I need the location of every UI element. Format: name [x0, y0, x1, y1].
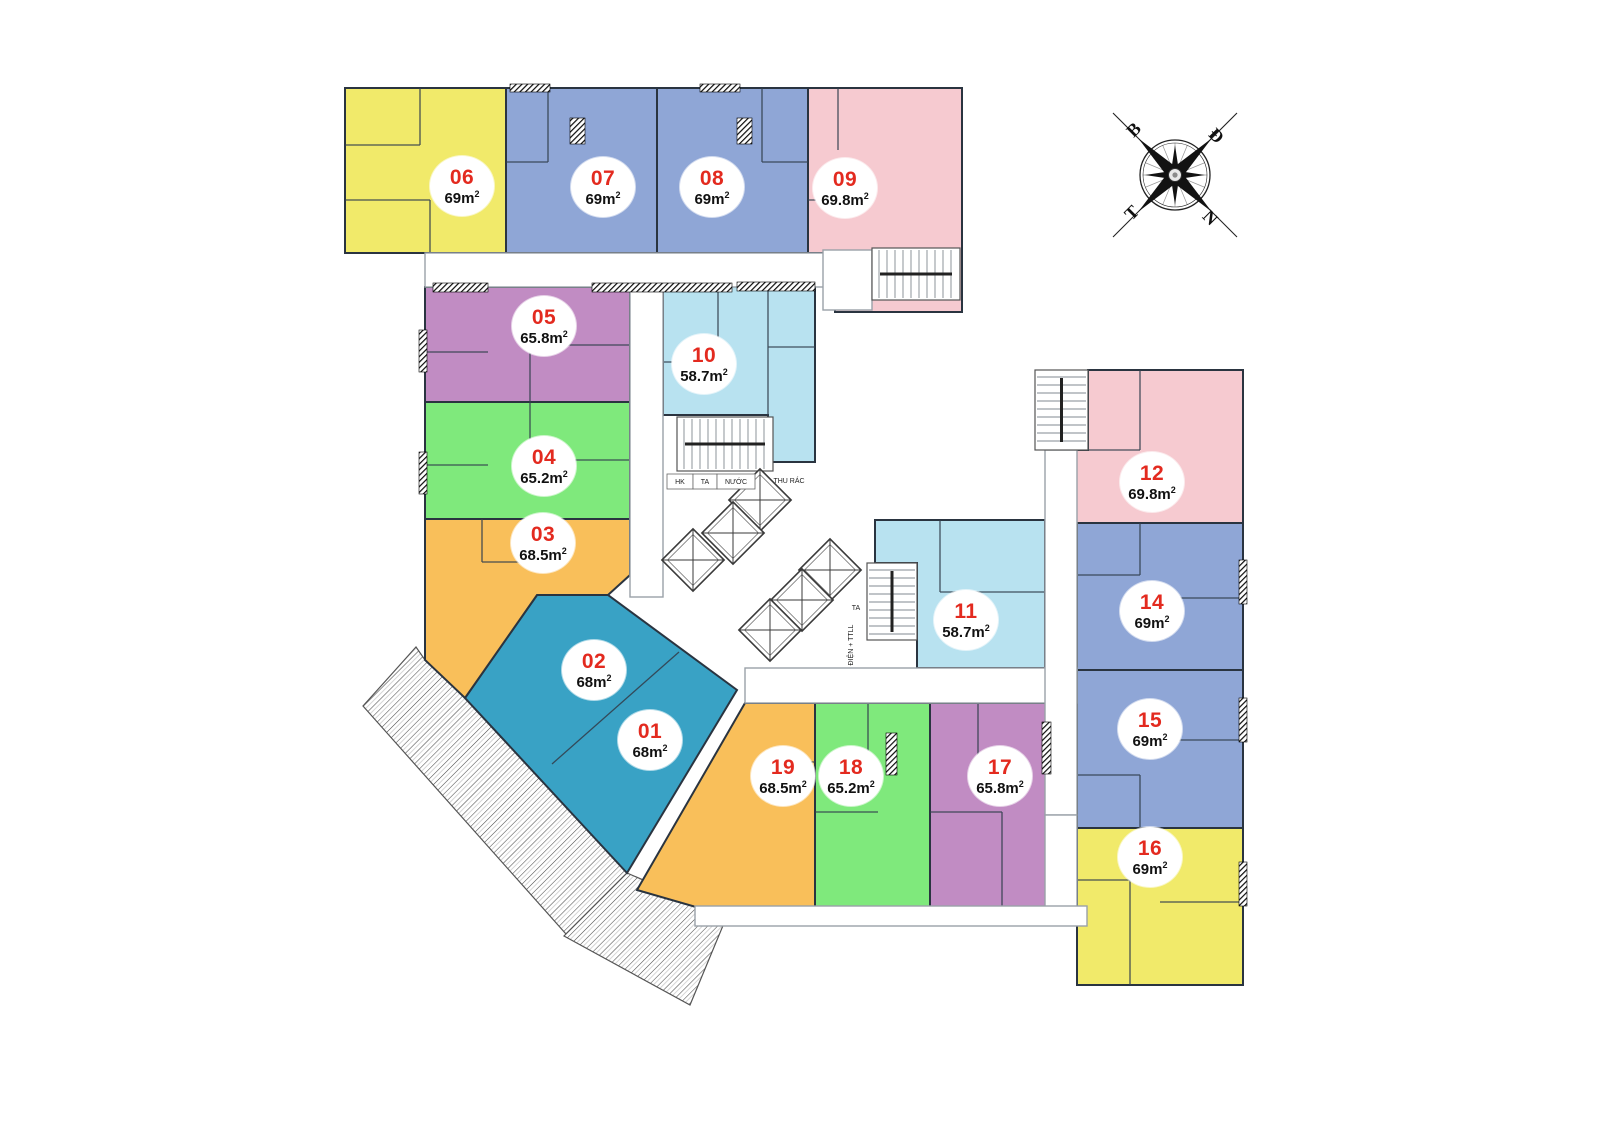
unit-area: 58.7m2: [942, 624, 990, 640]
unit-area-superscript: 2: [1163, 732, 1168, 742]
unit-area: 69m2: [694, 191, 729, 207]
unit-number: 03: [531, 524, 555, 545]
corridor-3: [745, 668, 1077, 703]
unit-area: 69m2: [444, 190, 479, 206]
floor-plan-drawing: HKTANƯỚCTHU RÁCTAĐIỆN + TTLL: [0, 0, 1600, 1132]
unit-area: 69m2: [1134, 615, 1169, 631]
unit-area-value: 68.5m: [759, 780, 802, 797]
corridor-5: [1045, 815, 1077, 920]
unit-badge-01[interactable]: 0168m2: [618, 710, 682, 770]
unit-area-superscript: 2: [475, 189, 480, 199]
unit-area-superscript: 2: [1019, 779, 1024, 789]
unit-badge-12[interactable]: 1269.8m2: [1120, 452, 1184, 512]
wall-column-mark: [737, 282, 815, 291]
unit-area-value: 58.7m: [942, 624, 985, 641]
unit-area: 65.8m2: [976, 780, 1024, 796]
unit-area: 69.8m2: [1128, 486, 1176, 502]
unit-area-value: 69m: [694, 191, 724, 208]
unit-area: 69m2: [1132, 733, 1167, 749]
unit-18-region[interactable]: [815, 703, 930, 908]
unit-number: 01: [638, 721, 662, 742]
core-label-ta2: TA: [852, 605, 861, 612]
unit-number: 11: [954, 601, 977, 622]
unit-number: 09: [833, 169, 857, 190]
wall-column-mark: [419, 452, 427, 494]
unit-badge-16[interactable]: 1669m2: [1118, 827, 1182, 887]
unit-badge-10[interactable]: 1058.7m2: [672, 334, 736, 394]
unit-area: 69.8m2: [821, 192, 869, 208]
core-label-nuoc: NƯỚC: [725, 477, 747, 486]
unit-area-value: 69m: [444, 190, 474, 207]
unit-area-value: 68m: [632, 744, 662, 761]
unit-number: 14: [1140, 592, 1164, 613]
core-label-ta: TA: [701, 479, 710, 486]
wall-column-mark: [433, 283, 488, 292]
unit-number: 12: [1140, 463, 1164, 484]
unit-badge-19[interactable]: 1968.5m2: [751, 746, 815, 806]
unit-area-value: 65.8m: [976, 780, 1019, 797]
wall-column-mark: [700, 84, 740, 92]
unit-area-value: 69m: [1132, 861, 1162, 878]
unit-area-value: 69m: [1132, 733, 1162, 750]
staircase-3: [1035, 370, 1088, 450]
unit-area-superscript: 2: [985, 623, 990, 633]
unit-area: 65.8m2: [520, 330, 568, 346]
unit-area: 68.5m2: [519, 547, 567, 563]
unit-number: 05: [532, 307, 556, 328]
core-label-thu_rac: THU RÁC: [773, 476, 804, 485]
unit-number: 08: [700, 168, 724, 189]
unit-number: 17: [988, 757, 1012, 778]
wall-column-mark: [419, 330, 427, 372]
unit-area-superscript: 2: [1163, 860, 1168, 870]
unit-number: 10: [692, 345, 716, 366]
unit-area-value: 69m: [1134, 615, 1164, 632]
unit-badge-08[interactable]: 0869m2: [680, 157, 744, 217]
unit-area: 68m2: [576, 674, 611, 690]
unit-area-superscript: 2: [562, 546, 567, 556]
staircase-2: [867, 563, 917, 640]
unit-area: 68m2: [632, 744, 667, 760]
unit-area-value: 65.2m: [520, 470, 563, 487]
wall-column-mark: [1239, 560, 1247, 604]
unit-area-value: 69.8m: [821, 192, 864, 209]
unit-area: 65.2m2: [520, 470, 568, 486]
unit-area-value: 65.2m: [827, 780, 870, 797]
unit-badge-18[interactable]: 1865.2m2: [819, 746, 883, 806]
unit-area-value: 68m: [576, 674, 606, 691]
wall-column-mark: [1239, 698, 1247, 742]
unit-area-value: 68.5m: [519, 547, 562, 564]
floor-plan: HKTANƯỚCTHU RÁCTAĐIỆN + TTLL 0168m20268m…: [0, 0, 1600, 1132]
unit-area-superscript: 2: [663, 743, 668, 753]
unit-area-superscript: 2: [870, 779, 875, 789]
unit-number: 07: [591, 168, 615, 189]
unit-area-superscript: 2: [723, 367, 728, 377]
unit-area-value: 65.8m: [520, 330, 563, 347]
wall-column-mark: [737, 118, 752, 144]
unit-area: 68.5m2: [759, 780, 807, 796]
corridor-7: [823, 250, 872, 310]
wall-column-mark: [510, 84, 550, 92]
unit-badge-04[interactable]: 0465.2m2: [512, 436, 576, 496]
corridor-2: [630, 287, 663, 597]
wall-column-mark: [570, 118, 585, 144]
unit-area-value: 58.7m: [680, 368, 723, 385]
unit-badge-14[interactable]: 1469m2: [1120, 581, 1184, 641]
unit-area: 58.7m2: [680, 368, 728, 384]
unit-area-superscript: 2: [1165, 614, 1170, 624]
wall-column-mark: [1239, 862, 1247, 906]
corridor-6: [695, 906, 1087, 926]
unit-area-superscript: 2: [1171, 485, 1176, 495]
unit-area: 69m2: [585, 191, 620, 207]
core-label-hk: HK: [675, 479, 685, 486]
wall-column-mark: [886, 733, 897, 775]
unit-badge-03[interactable]: 0368.5m2: [511, 513, 575, 573]
unit-area-superscript: 2: [725, 190, 730, 200]
staircase-1: [677, 417, 773, 471]
unit-area-value: 69.8m: [1128, 486, 1171, 503]
unit-area: 69m2: [1132, 861, 1167, 877]
unit-badge-02[interactable]: 0268m2: [562, 640, 626, 700]
unit-badge-15[interactable]: 1569m2: [1118, 699, 1182, 759]
unit-area: 65.2m2: [827, 780, 875, 796]
unit-number: 15: [1138, 710, 1162, 731]
unit-badge-05[interactable]: 0565.8m2: [512, 296, 576, 356]
unit-area-superscript: 2: [607, 673, 612, 683]
unit-number: 04: [532, 447, 556, 468]
unit-badge-07[interactable]: 0769m2: [571, 157, 635, 217]
unit-badge-09[interactable]: 0969.8m2: [813, 158, 877, 218]
unit-number: 16: [1138, 838, 1162, 859]
unit-area-superscript: 2: [802, 779, 807, 789]
unit-area-value: 69m: [585, 191, 615, 208]
core-label-dien_ttll: ĐIỆN + TTLL: [846, 624, 855, 665]
wall-column-mark: [592, 283, 732, 292]
unit-number: 06: [450, 167, 474, 188]
unit-area-superscript: 2: [563, 329, 568, 339]
unit-badge-06[interactable]: 0669m2: [430, 156, 494, 216]
wall-column-mark: [1042, 722, 1051, 774]
unit-area-superscript: 2: [864, 191, 869, 201]
unit-area-superscript: 2: [616, 190, 621, 200]
staircase-4: [872, 248, 960, 300]
unit-number: 18: [839, 757, 863, 778]
unit-number: 02: [582, 651, 606, 672]
unit-area-superscript: 2: [563, 469, 568, 479]
unit-badge-17[interactable]: 1765.8m2: [968, 746, 1032, 806]
unit-badge-11[interactable]: 1158.7m2: [934, 590, 998, 650]
unit-number: 19: [771, 757, 795, 778]
